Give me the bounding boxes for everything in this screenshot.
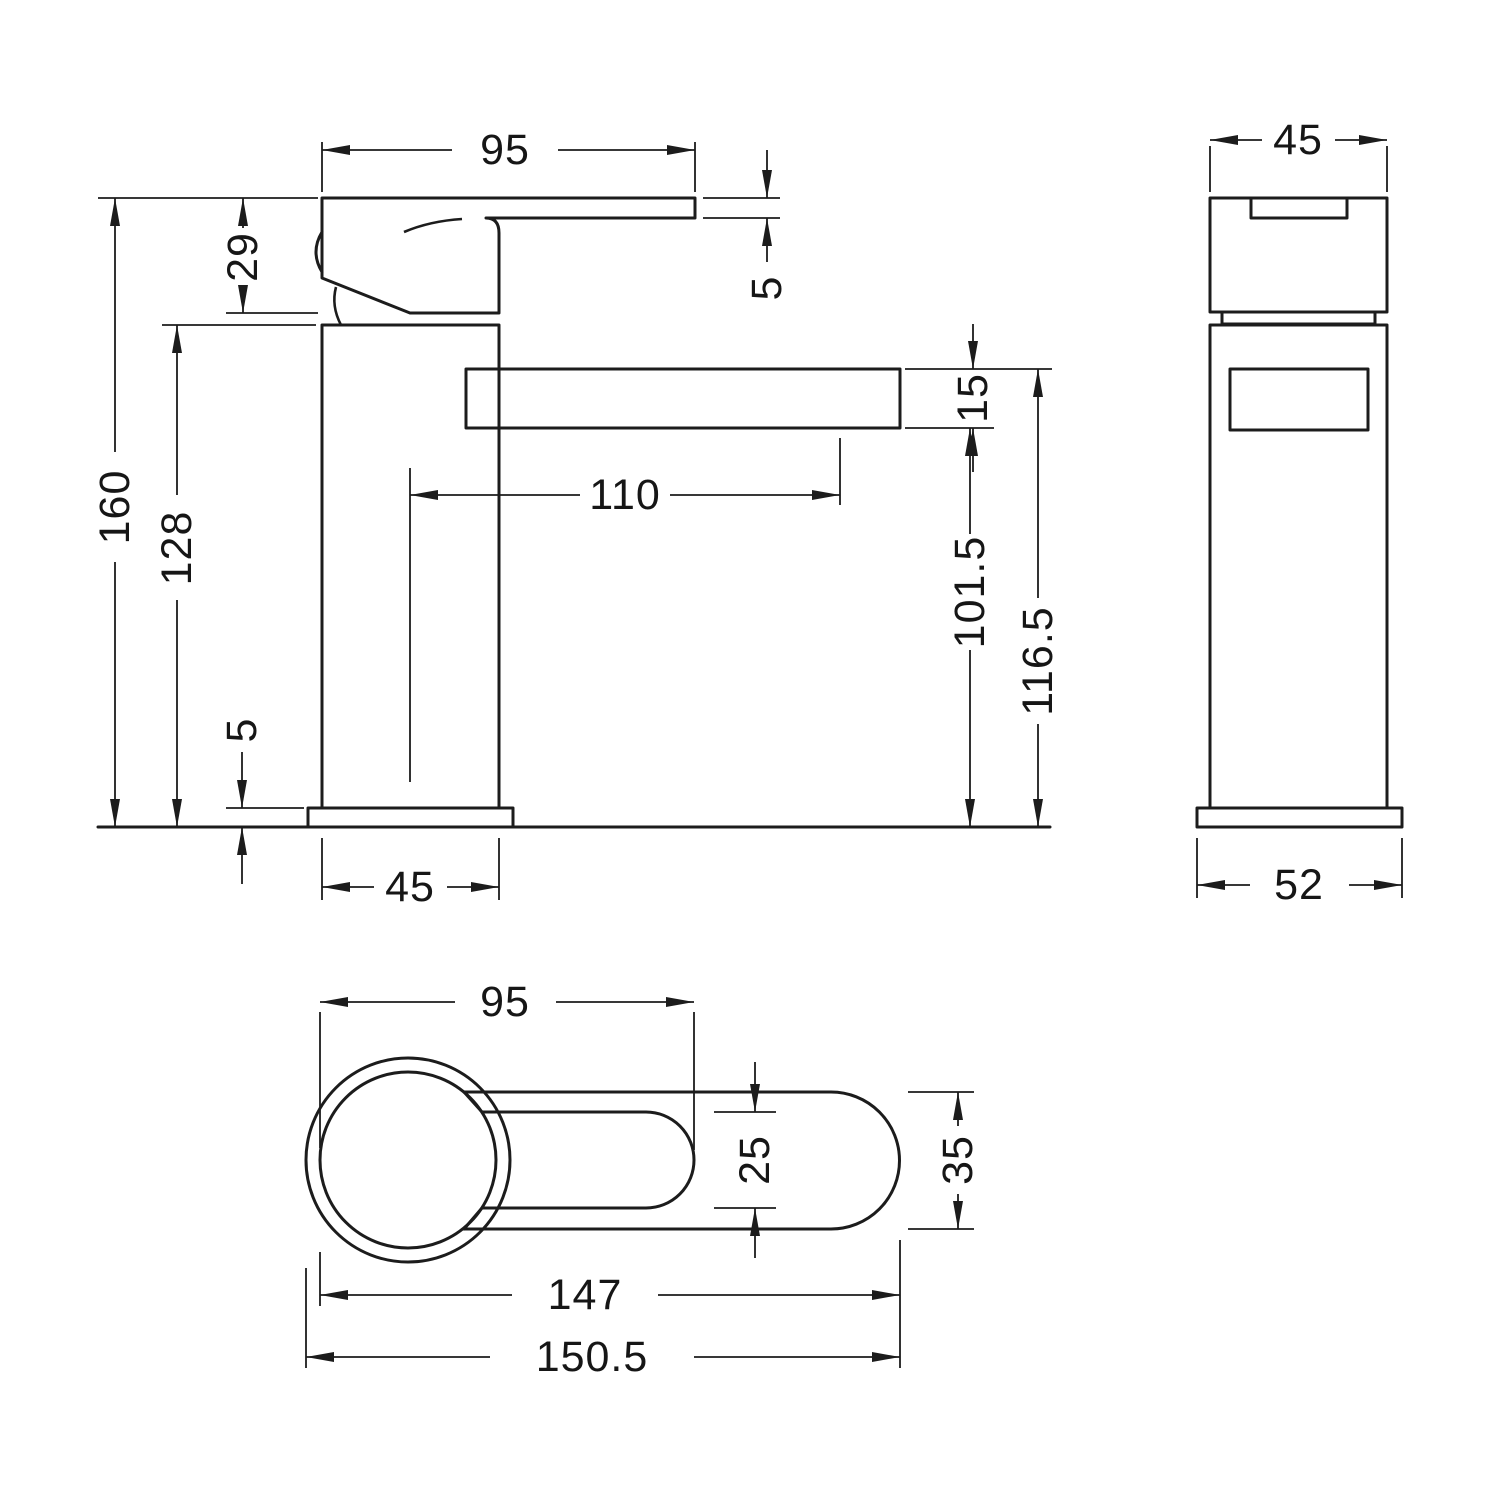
front-body-column (1210, 325, 1387, 808)
dim-side-handle-height: 29 (219, 232, 267, 282)
side-view: 95 5 29 160 128 5 110 15 (91, 126, 1062, 911)
side-handle-lever-outline (322, 198, 695, 313)
top-lever-outline (464, 1092, 694, 1229)
dim-side-body-height: 128 (153, 511, 201, 586)
drawing-page: 95 5 29 160 128 5 110 15 (0, 0, 1500, 1500)
dim-side-spout-top-height: 116.5 (1014, 606, 1062, 715)
dim-top-spout-width: 35 (934, 1135, 982, 1185)
dim-side-lever-thickness: 5 (743, 276, 791, 301)
side-handle-body-seam-curve (334, 287, 341, 325)
side-spout (466, 369, 900, 428)
dim-ext (320, 1012, 694, 1150)
technical-drawing-canvas: 95 5 29 160 128 5 110 15 (0, 0, 1500, 1500)
dim-ext (98, 198, 318, 313)
front-seam-ring (1222, 313, 1375, 324)
side-lever-seam-curve (404, 219, 462, 232)
dim-side-spout-underside-height: 101.5 (946, 536, 994, 649)
dim-ext (703, 198, 780, 218)
dim-front-body-width: 45 (1273, 116, 1323, 164)
side-baseplate (308, 808, 513, 827)
dim-side-base-thickness: 5 (218, 718, 266, 743)
front-baseplate (1197, 808, 1402, 827)
front-lever-notch (1251, 198, 1347, 218)
dim-side-overall-height: 160 (91, 470, 139, 545)
dim-top-length-to-body: 147 (548, 1271, 623, 1319)
dim-side-spout-depth: 15 (949, 373, 997, 423)
front-handle-block (1210, 198, 1387, 312)
dim-top-overall-length: 150.5 (536, 1333, 649, 1381)
dim-side-handle-reach: 95 (480, 126, 530, 174)
dim-top-handle-reach: 95 (480, 978, 530, 1026)
front-view: 45 52 (1197, 116, 1402, 909)
dim-side-spout-reach: 110 (589, 471, 661, 519)
top-view: 95 25 35 147 150.5 (306, 978, 982, 1381)
front-spout-window (1230, 369, 1368, 430)
top-baseplate-circle (306, 1058, 510, 1262)
dim-top-lever-width: 25 (731, 1135, 779, 1185)
dim-side-body-width: 45 (385, 863, 435, 911)
dim-front-base-width: 52 (1274, 861, 1324, 909)
